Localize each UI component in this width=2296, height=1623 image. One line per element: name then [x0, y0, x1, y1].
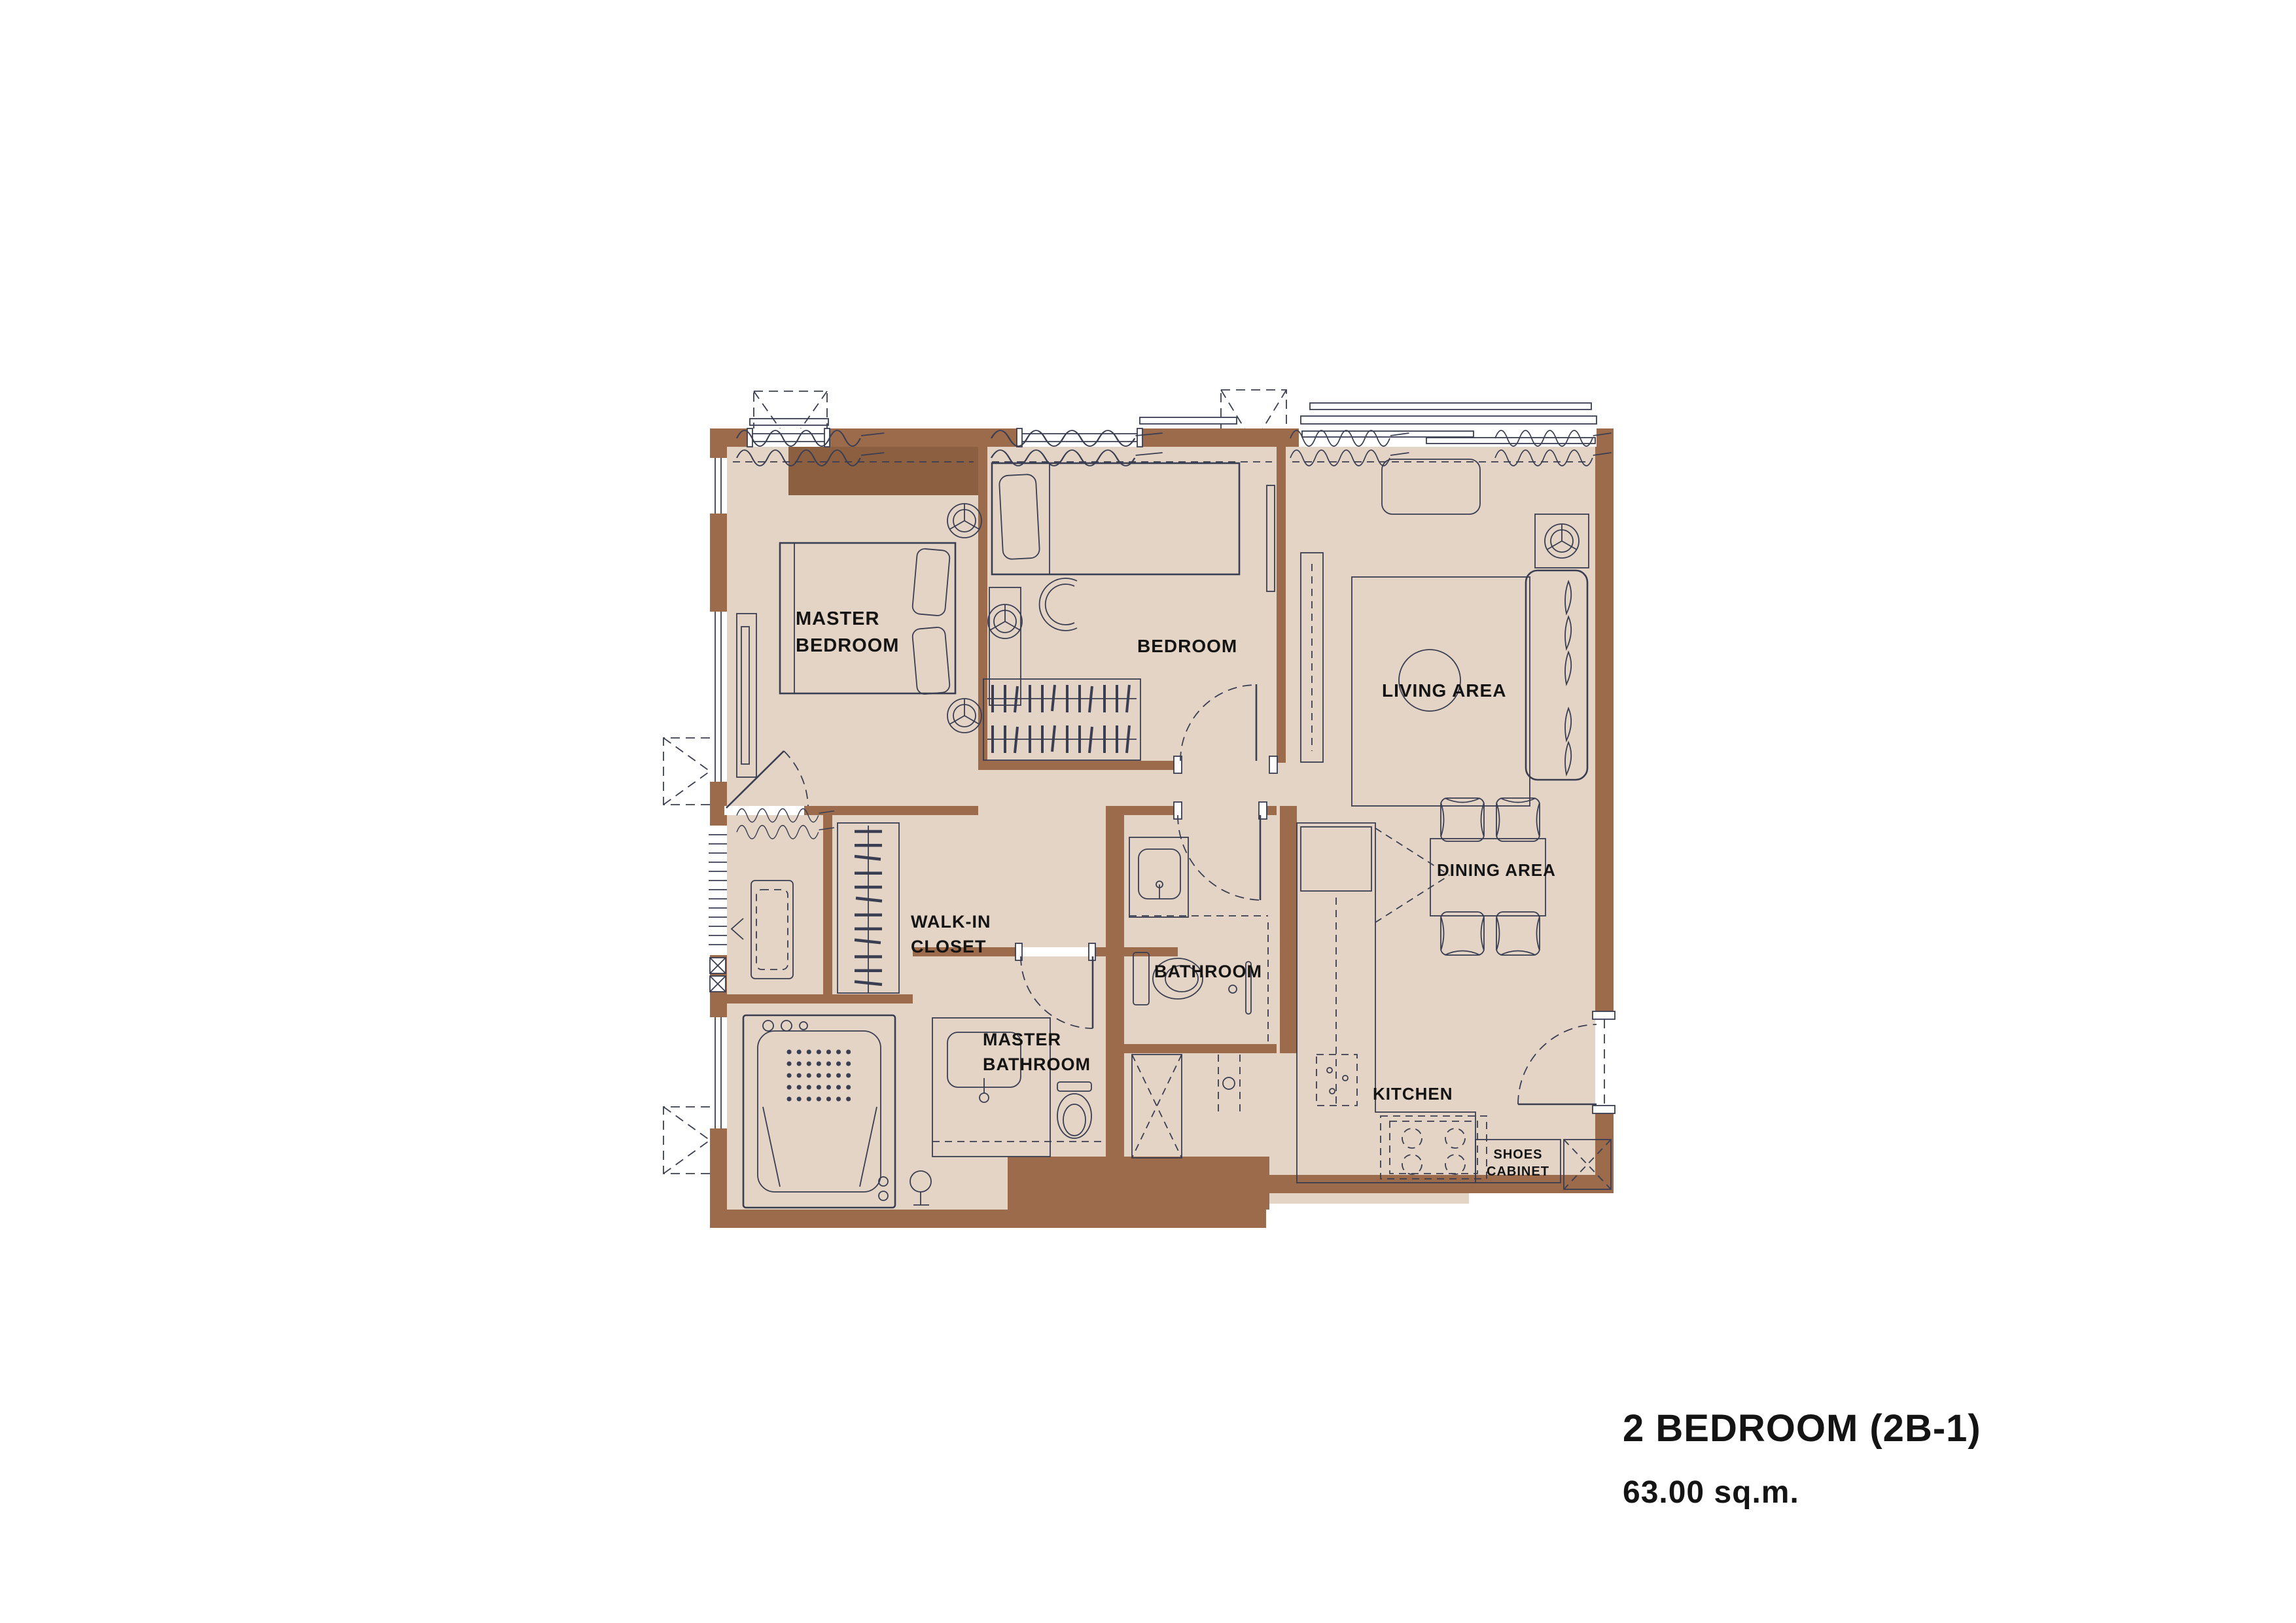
window-marker-icon	[663, 1107, 710, 1174]
label-walk-in-closet: WALK-IN CLOSET	[911, 909, 991, 960]
louver-vent-icon	[709, 826, 727, 992]
label-bathroom: BATHROOM	[1154, 959, 1262, 984]
label-master-bedroom: MASTER BEDROOM	[796, 606, 899, 659]
label-kitchen: KITCHEN	[1373, 1082, 1453, 1106]
floor-plan-svg	[0, 0, 2296, 1623]
balcony-sill	[750, 403, 1597, 425]
label-shoes-cabinet: SHOES CABINET	[1477, 1146, 1559, 1180]
label-living-area: LIVING AREA	[1382, 678, 1506, 704]
plan-title: 2 BEDROOM (2B-1)	[1623, 1406, 1981, 1450]
label-bedroom: BEDROOM	[1137, 633, 1237, 659]
label-master-bathroom: MASTER BATHROOM	[983, 1027, 1091, 1077]
window-marker-icon	[663, 738, 710, 805]
plan-area: 63.00 sq.m.	[1623, 1475, 1799, 1510]
label-dining-area: DINING AREA	[1437, 858, 1556, 882]
window-bedroom	[1017, 428, 1142, 447]
floor	[727, 447, 1597, 1210]
